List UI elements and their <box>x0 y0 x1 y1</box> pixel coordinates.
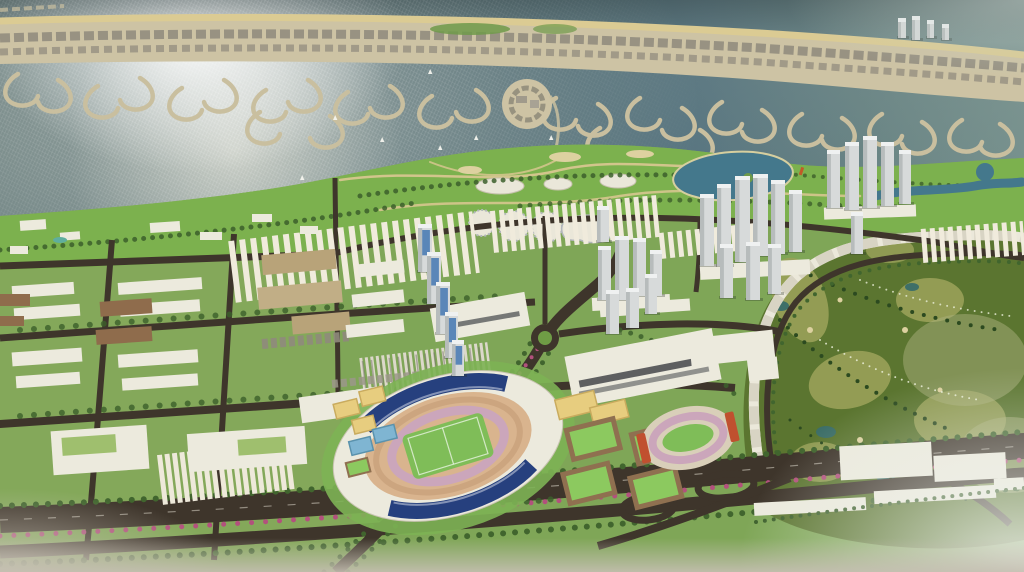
aerial-render-scene <box>0 0 1024 572</box>
tower-shade <box>720 246 724 298</box>
pond <box>976 163 994 181</box>
sand-patch <box>626 150 654 158</box>
tower-shade <box>898 20 901 38</box>
tower-roof <box>626 288 639 292</box>
marina-finger <box>627 98 660 130</box>
tower-roof <box>418 224 432 228</box>
sailboat <box>549 135 553 140</box>
marina-finger <box>742 110 775 142</box>
tower-roof <box>445 312 458 316</box>
island-towers <box>897 16 952 41</box>
tower-shade <box>735 178 740 262</box>
marina-finger <box>5 74 38 106</box>
marina-finger <box>902 122 935 154</box>
tower-glass-face <box>440 288 448 316</box>
tower-shade <box>597 208 601 242</box>
golf-pond <box>905 283 919 291</box>
tower-shade <box>899 152 903 204</box>
tower-roof <box>912 16 920 20</box>
marina-finger <box>288 80 321 112</box>
marina-finger <box>980 124 1013 156</box>
tower-glass-face <box>449 318 456 342</box>
bunker <box>807 327 813 333</box>
tower-roof <box>606 290 619 294</box>
marina-finger <box>120 78 153 110</box>
tower-roof <box>720 244 733 248</box>
marina-finger <box>247 112 280 144</box>
fairway-pale <box>903 314 1024 406</box>
marina-island-building <box>530 100 539 108</box>
marina-finger <box>709 102 742 134</box>
sailboat <box>438 145 442 150</box>
tower-roof <box>942 24 949 28</box>
island-piers-topleft <box>0 6 64 10</box>
marina-island-building <box>516 96 527 103</box>
tower-roof <box>615 236 629 240</box>
sand-patch <box>458 166 482 174</box>
villa-pool <box>53 237 67 243</box>
tower-shade <box>452 342 456 376</box>
tower-shade <box>845 144 849 210</box>
marina-finger <box>370 86 403 118</box>
bunker <box>902 327 908 333</box>
tower-roof <box>700 194 714 198</box>
tower-roof <box>927 20 934 24</box>
tower-shade <box>700 196 704 266</box>
villa <box>300 226 318 234</box>
tower-shade <box>912 18 915 40</box>
tower-roof <box>899 150 911 154</box>
island-green-1 <box>430 23 510 35</box>
tower-shade <box>427 254 431 304</box>
tower-shade <box>633 240 637 296</box>
marina-finger <box>662 108 695 140</box>
brown-block <box>0 294 30 306</box>
sand-patch <box>549 152 581 162</box>
green-roof <box>61 434 116 456</box>
bunker <box>838 298 843 303</box>
marina-finger <box>310 116 343 148</box>
tower-roof <box>645 274 657 278</box>
sailboat <box>380 137 384 142</box>
tower-roof <box>845 142 859 146</box>
villa <box>150 221 181 233</box>
marina-finger <box>949 120 982 152</box>
tower-glass-face <box>422 230 430 255</box>
villa <box>200 232 222 240</box>
villa <box>252 214 272 222</box>
tower-roof <box>768 244 781 248</box>
circular-marina-island <box>502 79 558 148</box>
tower-shade <box>863 138 867 208</box>
marina-finger <box>456 90 489 122</box>
tower-shade <box>851 214 855 254</box>
marina-finger <box>253 90 286 122</box>
tower-roof <box>863 136 877 140</box>
marina-finger <box>204 80 237 112</box>
tower-shade <box>827 152 831 208</box>
tower-roof <box>851 212 863 216</box>
tower-roof <box>735 176 750 180</box>
tower-shade <box>768 246 772 294</box>
tower-roof <box>881 142 894 146</box>
tower-roof <box>452 340 464 344</box>
tower-roof <box>898 18 906 22</box>
marina-finger <box>38 80 71 112</box>
tower-roof <box>427 252 441 256</box>
tower-shade <box>881 144 885 206</box>
tower-roof <box>598 246 611 250</box>
tower-shade <box>606 292 610 334</box>
tower-shade <box>771 182 775 254</box>
sailboat <box>300 175 304 180</box>
se-row-3 <box>994 477 1024 491</box>
tower-roof <box>746 242 760 246</box>
sailboat <box>474 135 478 140</box>
se-slab-1 <box>839 442 933 481</box>
tower-shade <box>445 314 449 358</box>
tower-roof <box>789 190 802 194</box>
tower-roof <box>597 206 609 210</box>
villa <box>20 219 47 231</box>
tower-shade <box>789 192 793 252</box>
tower-shade <box>436 284 440 334</box>
tower-roof <box>717 184 731 188</box>
tower-glass-face <box>431 258 439 286</box>
tower-roof <box>436 282 450 286</box>
tower-roof <box>771 180 785 184</box>
villa <box>10 246 28 254</box>
island-green-2 <box>533 24 577 34</box>
tower-shade <box>598 248 602 300</box>
tower-shade <box>746 244 750 300</box>
tower-roof <box>650 250 662 254</box>
bunker <box>857 437 863 443</box>
tower-roof <box>633 238 646 242</box>
tower-shade <box>942 26 945 40</box>
tower-glass-face <box>456 346 463 365</box>
scene-svg <box>0 0 1024 572</box>
marina-finger <box>335 92 368 124</box>
tower-shade <box>927 22 930 38</box>
tower-roof <box>827 150 840 154</box>
green-roof <box>238 436 287 455</box>
brown-block <box>0 316 24 326</box>
sailboat <box>428 69 432 74</box>
golf-pond <box>816 426 836 438</box>
se-slab-2 <box>933 452 1006 482</box>
marina-finger <box>419 96 452 128</box>
marina-finger <box>85 86 118 118</box>
marina-finger <box>789 114 822 146</box>
tower-shade <box>626 290 630 328</box>
hall-l-wing <box>747 356 779 381</box>
tower-roof <box>753 174 768 178</box>
roundabout-green <box>538 331 552 345</box>
tower-shade <box>418 226 422 272</box>
marina-finger <box>169 88 202 120</box>
tower-shade <box>645 276 649 314</box>
